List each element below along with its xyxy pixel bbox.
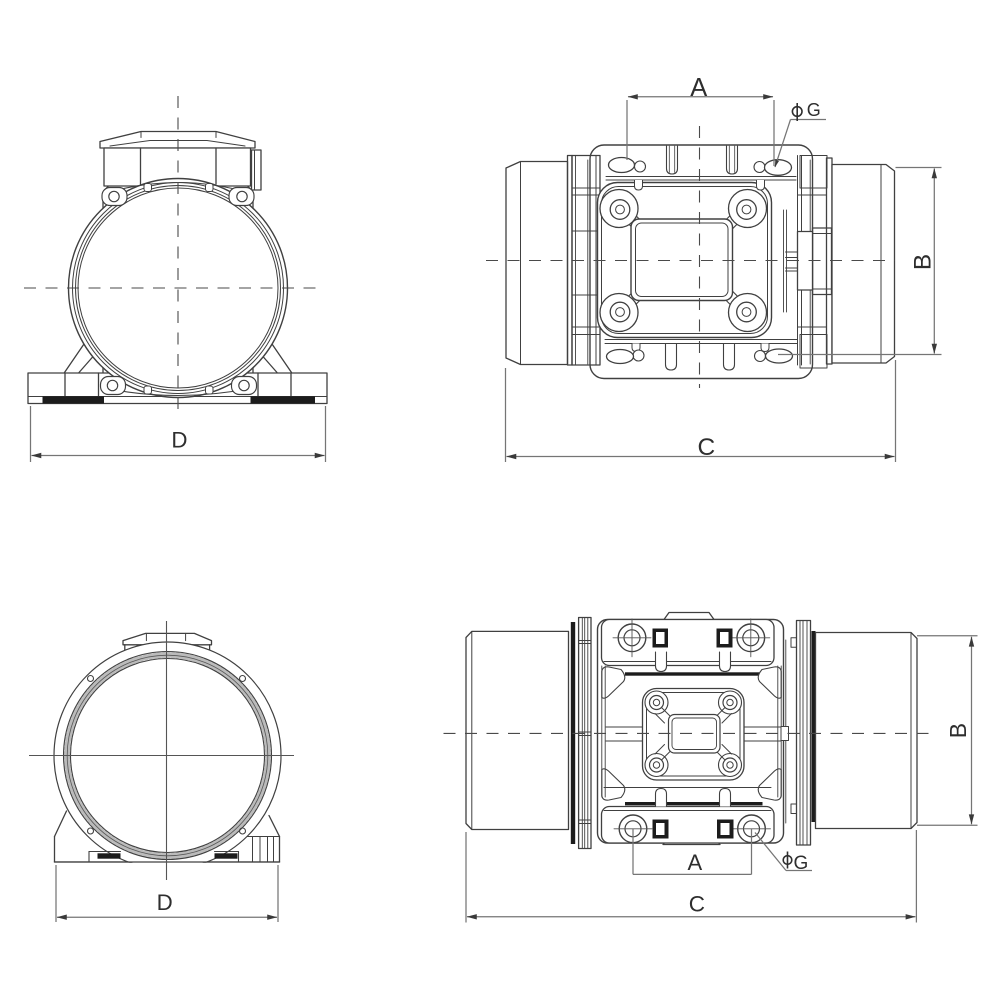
svg-text:B: B [945,723,971,738]
svg-text:D: D [157,890,173,915]
svg-text:D: D [171,428,187,453]
svg-text:G: G [807,100,821,120]
svg-text:C: C [689,891,705,916]
svg-text:A: A [690,74,707,102]
svg-text:C: C [697,434,715,461]
svg-text:B: B [910,254,937,270]
svg-text:G: G [794,853,809,874]
svg-text:A: A [687,850,702,875]
